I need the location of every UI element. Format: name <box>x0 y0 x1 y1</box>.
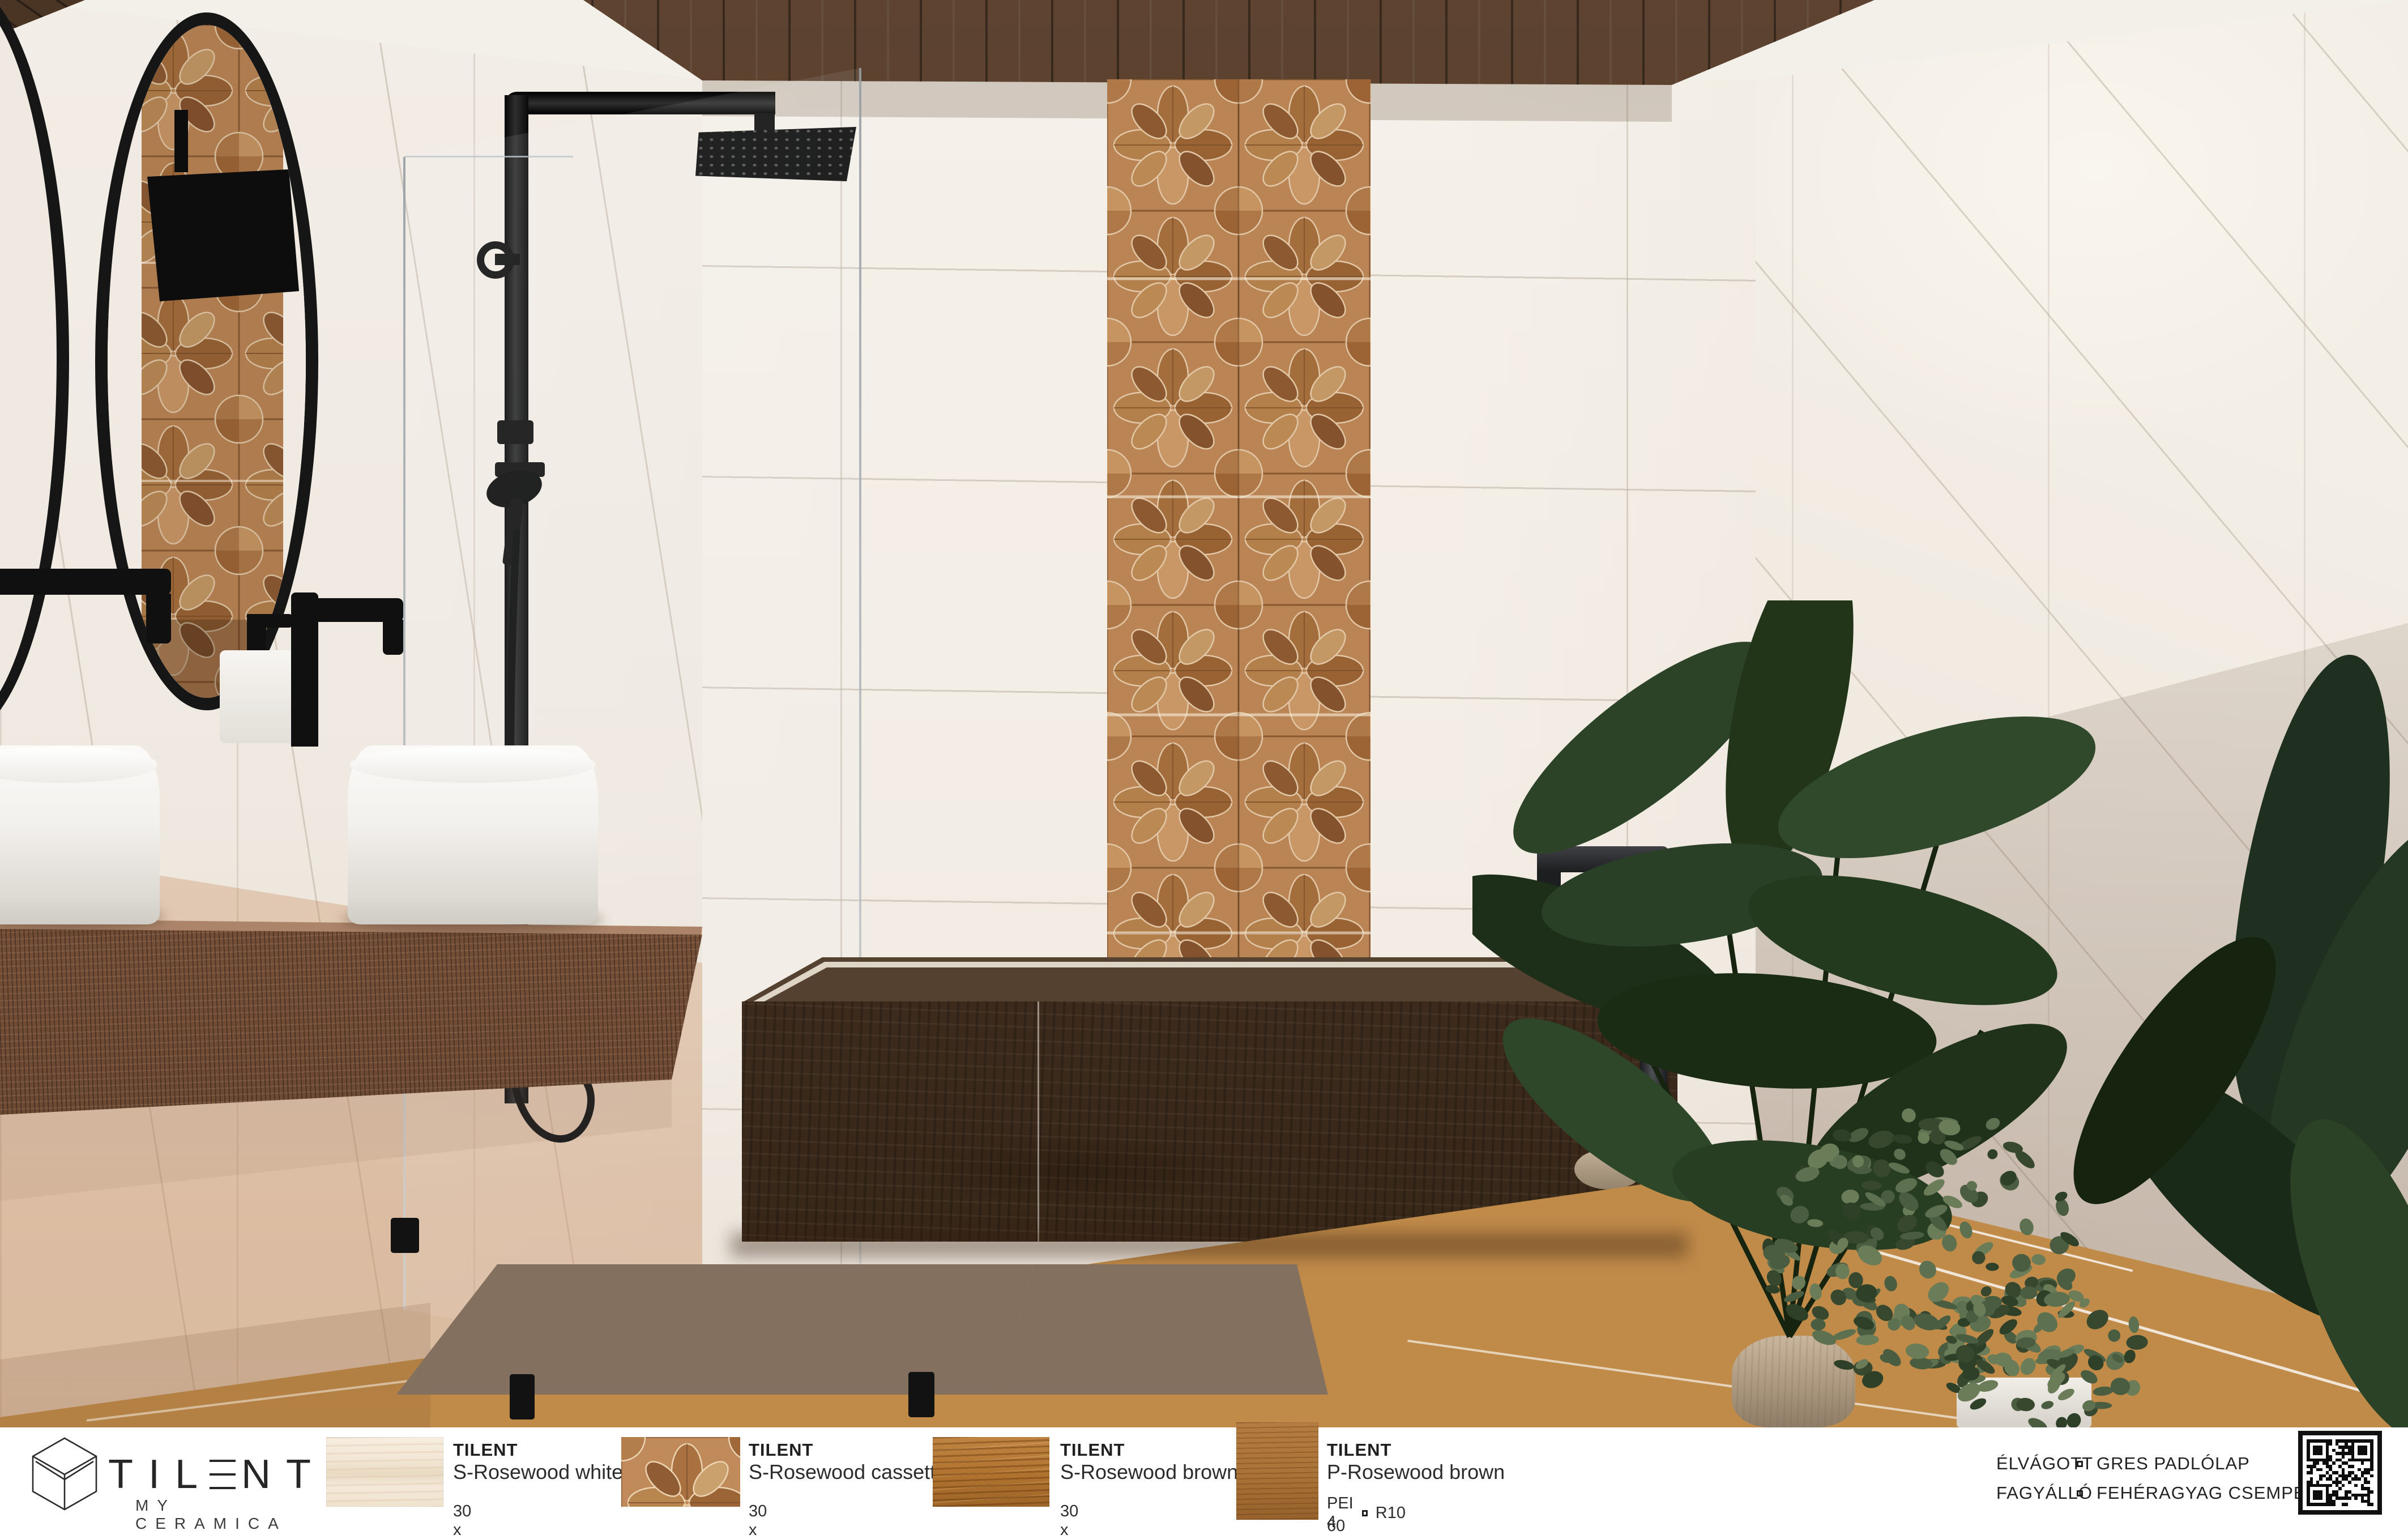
faucet-right-arm <box>315 598 403 622</box>
faucet-right-spout <box>383 620 403 655</box>
spec-row: FAGYÁLLÓ FEHÉRAGYAG CSEMPE <box>1996 1483 2306 1503</box>
qr-code-modules <box>2307 1439 2373 1506</box>
brand-tagline: MY CERAMICA <box>135 1497 287 1533</box>
product-brand: TILENT <box>1060 1440 1125 1460</box>
wall-faucet-left-spout <box>146 594 171 643</box>
rosewood-brown-tile-swatch <box>933 1437 1049 1507</box>
qr-code <box>2298 1431 2382 1515</box>
product-size: 30 x 60 cm <box>1060 1502 1082 1539</box>
bathroom-render <box>0 0 2408 1427</box>
soap-dispenser <box>220 650 298 743</box>
oval-mirror-main <box>95 12 318 710</box>
square-bullet-icon <box>2077 1490 2083 1497</box>
spec-row: ÉLVÁGOTT GRES PADLÓLAP <box>1996 1453 2250 1474</box>
product-size: 60 x 60 cm <box>1327 1517 1349 1539</box>
plants <box>1472 600 2408 1427</box>
rosewood-white-tile-swatch <box>326 1437 443 1507</box>
cube-logo-icon <box>31 1436 98 1511</box>
product-brand: TILENT <box>749 1440 814 1460</box>
glass-floor-clamp <box>510 1374 535 1419</box>
p-rosewood-brown-tile-swatch <box>1236 1422 1318 1520</box>
product-name: P-Rosewood brown <box>1327 1460 1505 1484</box>
rosewood-cassette-tile-swatch <box>621 1437 740 1507</box>
brand-wordmark: TILNT <box>108 1451 326 1498</box>
product-name: S-Rosewood brown <box>1060 1460 1238 1484</box>
vessel-sink-right <box>348 745 598 924</box>
product-brand: TILENT <box>453 1440 518 1460</box>
product-brand: TILENT <box>1327 1440 1392 1460</box>
dispenser-spout <box>256 614 293 628</box>
spec-value: FEHÉRAGYAG CSEMPE <box>2097 1483 2306 1503</box>
cassette-feature-strip <box>1107 79 1370 963</box>
product-name: S-Rosewood white <box>453 1460 623 1484</box>
glass-top-edge <box>404 156 573 157</box>
stylized-e-glyph <box>210 1460 236 1489</box>
banana-plant-leaves <box>1472 600 2110 1269</box>
square-bullet-icon <box>2077 1461 2083 1467</box>
product-size: 30 x 60 cm <box>453 1502 475 1539</box>
wall-faucet-left <box>0 569 171 595</box>
spec-label: FAGYÁLLÓ <box>1996 1483 2069 1503</box>
spec-value: GRES PADLÓLAP <box>2097 1453 2250 1474</box>
wordmark-post: NT <box>241 1452 326 1497</box>
faucet-right-post <box>291 592 318 747</box>
tub-panel-seam <box>1038 1001 1039 1242</box>
glass-floor-clamp <box>908 1372 934 1417</box>
glass-handle <box>391 1218 419 1253</box>
catalog-footer: TILNT MY CERAMICA TILENT S-Rosewood whit… <box>0 1427 2408 1539</box>
vessel-sink-left <box>0 745 160 924</box>
product-name: S-Rosewood cassette <box>749 1460 947 1484</box>
right-plant-leaves <box>2040 643 2408 1427</box>
catalog-page: TILNT MY CERAMICA TILENT S-Rosewood whit… <box>0 0 2408 1539</box>
product-size: 30 x 60 cm <box>749 1502 771 1539</box>
slip-rating: R10 <box>1376 1504 1406 1523</box>
spec-label: ÉLVÁGOTT <box>1996 1453 2069 1474</box>
square-bullet-icon <box>1362 1510 1367 1516</box>
wordmark-pre: TIL <box>108 1452 213 1497</box>
